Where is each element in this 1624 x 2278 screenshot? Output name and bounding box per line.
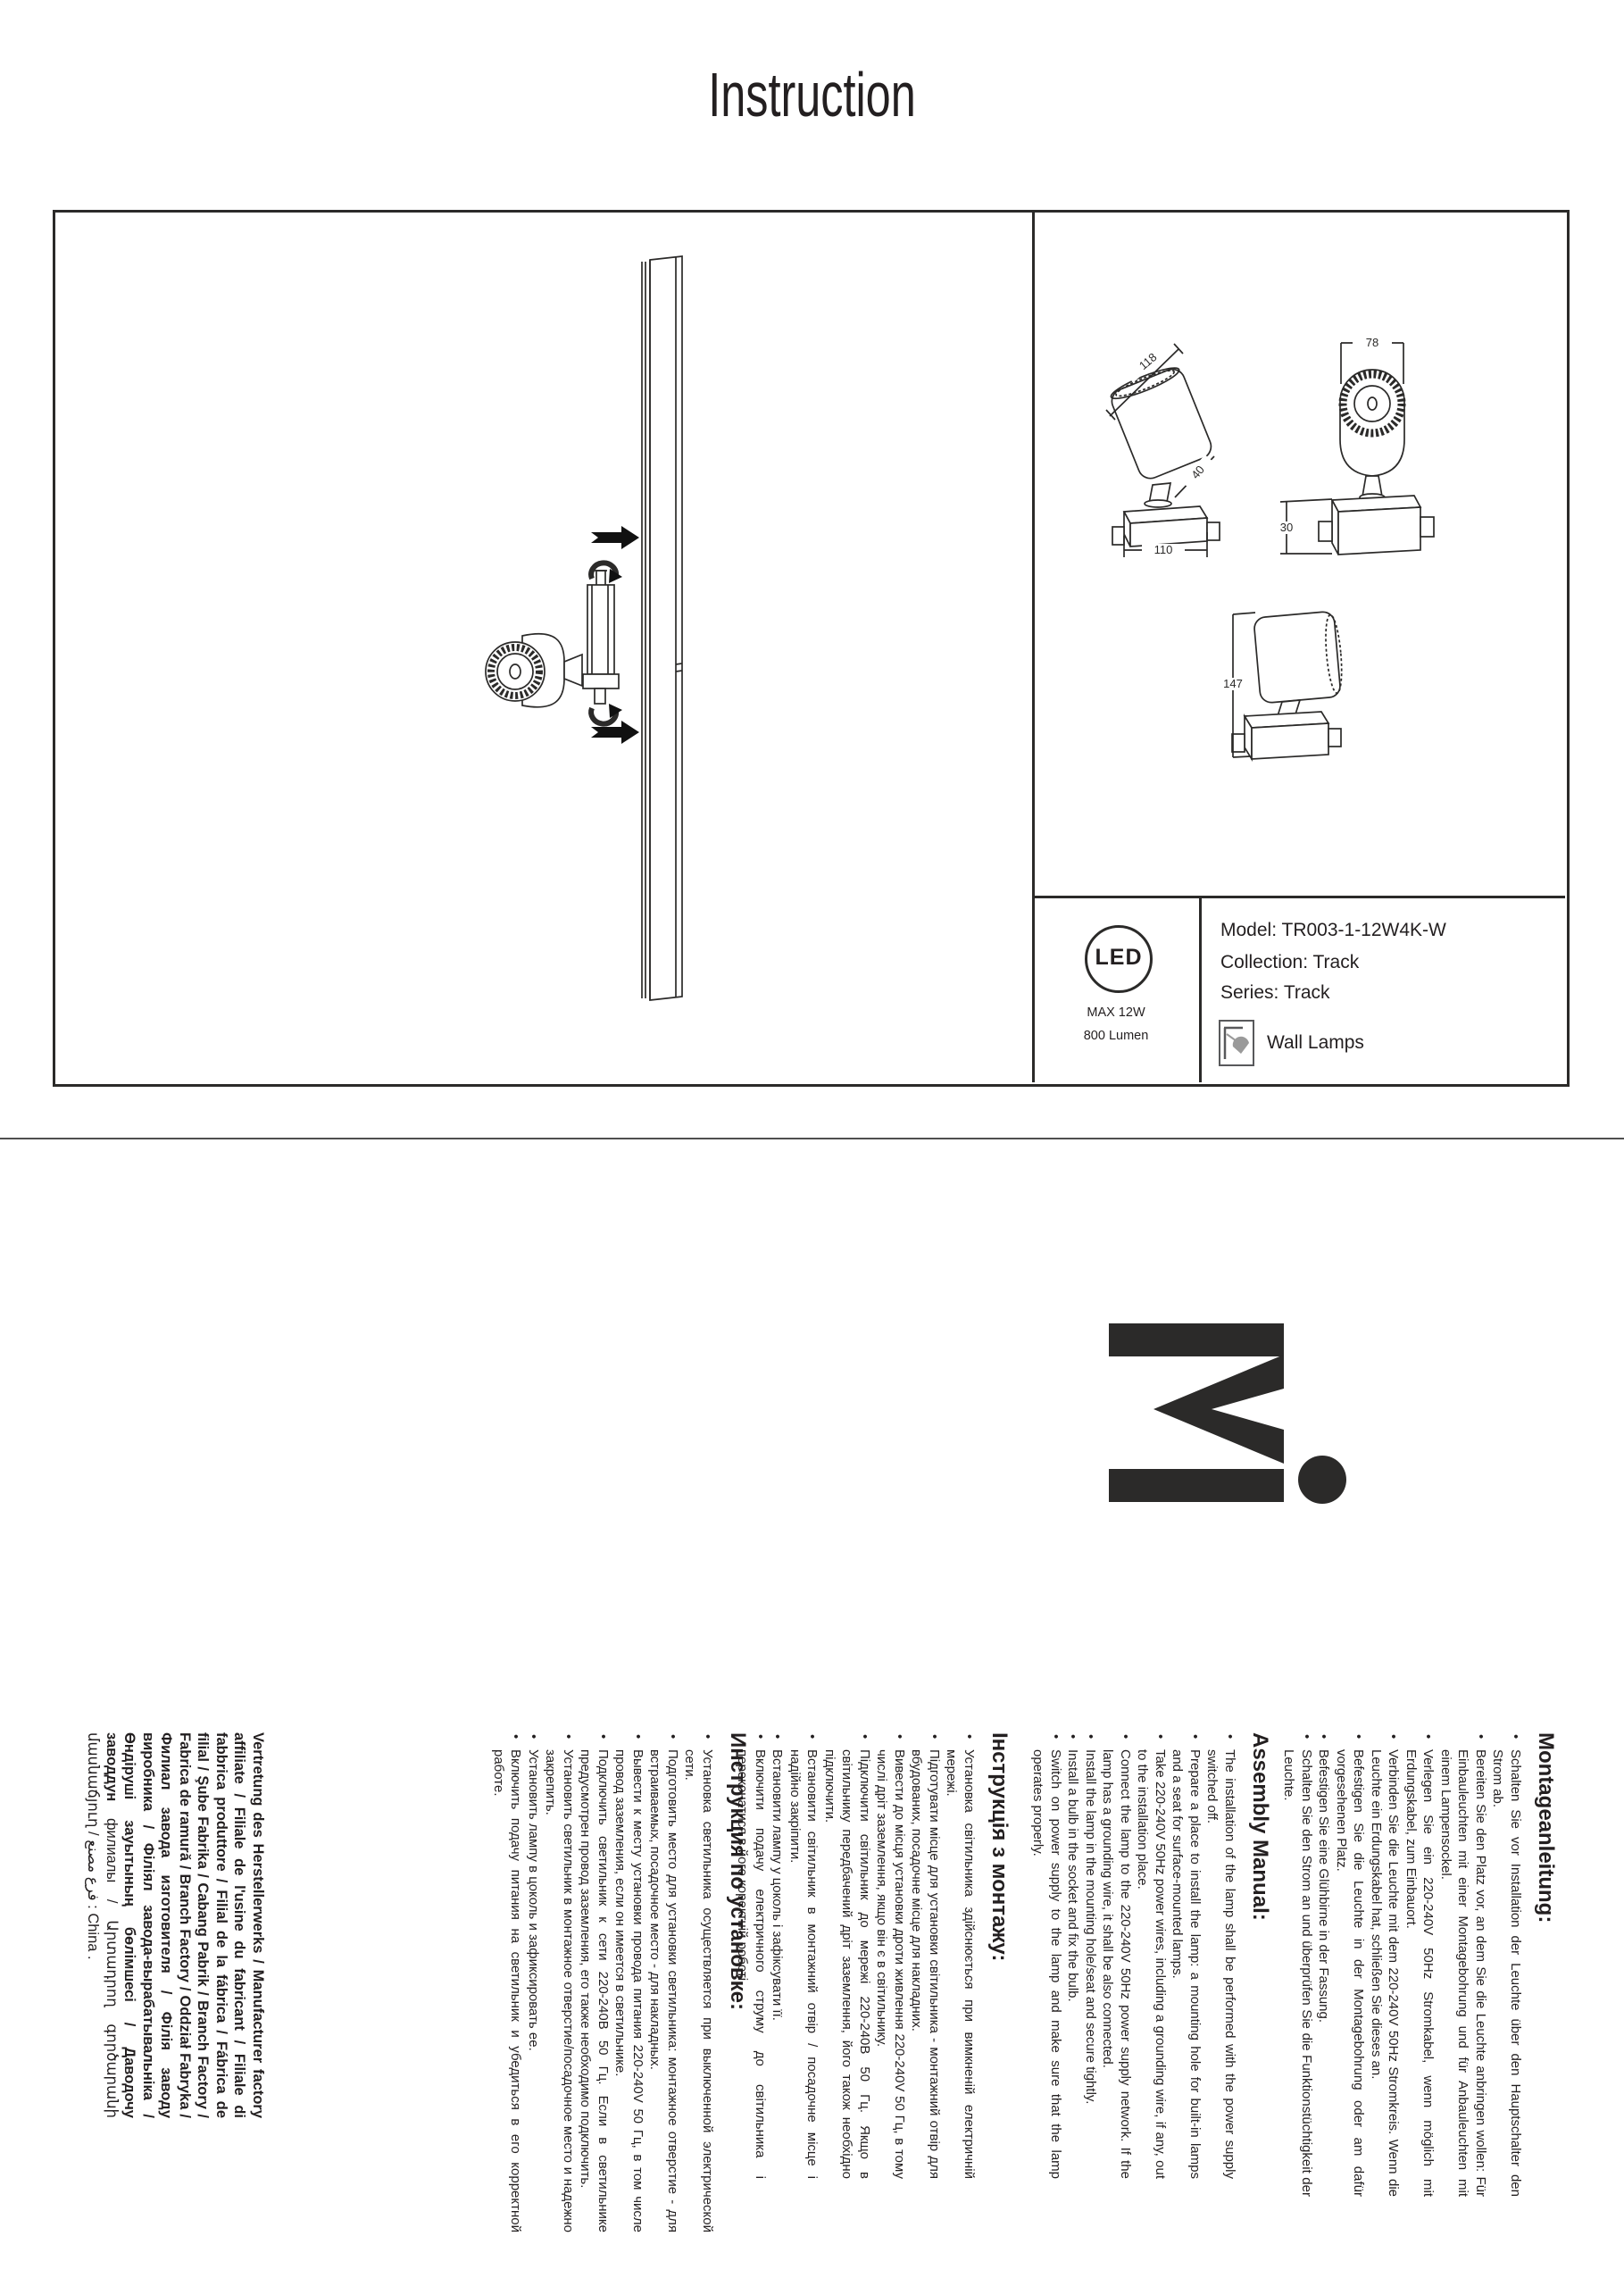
max-power-label: MAX 12W [1049, 1005, 1183, 1020]
led-badge: LED [1085, 925, 1153, 993]
section-german: Montageanleitung: Schalten Sie vor Insta… [1280, 1732, 1558, 2197]
instruction-item: Verlegen Sie ein 220-240V 50Hz Stromkabe… [1403, 1732, 1437, 2197]
section-ukrainian: Інструкція з монтажу: Установка світильн… [734, 1732, 1012, 2179]
collection-line: Collection: Track [1220, 952, 1359, 973]
series-line: Series: Track [1220, 982, 1330, 1004]
instruction-item: Schalten Sie den Strom an und überprüfen… [1280, 1732, 1315, 2197]
instruction-item: Switch on power supply to the lamp and m… [1029, 1732, 1064, 2179]
section-ukrainian-items: Установка світильника здійснюється при в… [734, 1732, 978, 2179]
section-german-items: Schalten Sie vor Installation der Leucht… [1280, 1732, 1524, 2197]
instruction-item: Schalten Sie vor Installation der Leucht… [1489, 1732, 1524, 2197]
dim-total-height: 147 [1215, 678, 1251, 690]
dim-base-height: 30 [1271, 522, 1302, 534]
instruction-item: Take 220-240V 50Hz power wires, includin… [1134, 1732, 1169, 2179]
instruction-item: Bereiten Sie den Platz vor, an dem Sie d… [1437, 1732, 1490, 2197]
section-separator [0, 1138, 1624, 1139]
instruction-item: Подготовить место для установки светильн… [646, 1732, 681, 2232]
instruction-item: Підготувати місце для установки світильн… [908, 1732, 943, 2179]
rotated-instructions-inner: Montageanleitung: Schalten Sie vor Insta… [112, 1732, 1558, 2278]
brand-logo-m [1109, 1323, 1346, 1504]
instruction-item: Вивести до місця установки дроти живленн… [873, 1732, 908, 2179]
dim-base-width: 110 [1142, 544, 1185, 556]
section-ukrainian-heading: Інструкція з монтажу: [987, 1732, 1012, 2179]
section-english-items: The installation of the lamp shall be pe… [1029, 1732, 1238, 2179]
wall-lamp-icon-frame [1219, 1020, 1254, 1066]
instruction-item: Вывести к месту установки провода питани… [612, 1732, 646, 2232]
section-german-heading: Montageanleitung: [1533, 1732, 1558, 2197]
instruction-item: Verbinden Sie die Leuchte mit dem 220-24… [1368, 1732, 1403, 2197]
instruction-item: Установить лампу в цоколь и зафиксироват… [525, 1732, 543, 2232]
manufacturer-note-bold: Vertretung des Herstellerwerks / Manufac… [104, 1732, 266, 2118]
instruction-sheet: Instruction [0, 0, 1624, 2278]
instruction-item: Установка светильника осуществляется при… [681, 1732, 716, 2232]
instruction-item: Встановити світильник в монтажний отвір … [787, 1732, 821, 2179]
manufacturer-note: Vertretung des Herstellerwerks / Manufac… [84, 1732, 267, 2118]
instruction-item: Подключить светильник к сети 220-240В 50… [577, 1732, 612, 2232]
section-russian-heading: Инструкция по установке: [725, 1732, 750, 2232]
model-line: Model: TR003-1-12W4K-W [1220, 920, 1446, 941]
instruction-item: Встановити лампу у цоколь і зафіксувати … [769, 1732, 787, 2179]
figure-side-tilted [1106, 344, 1220, 557]
figure-front [1280, 343, 1434, 555]
rotated-instructions-block: Montageanleitung: Schalten Sie vor Insta… [112, 1732, 1558, 2278]
section-russian-items: Установка светильника осуществляется при… [490, 1732, 717, 2232]
section-english-heading: Assembly Manual: [1247, 1732, 1272, 2179]
track-rail-drawing [642, 256, 682, 1000]
instruction-item: Установка світильника здійснюється при в… [943, 1732, 978, 2179]
instruction-item: Підключити світильник до мережі 220-240В… [821, 1732, 874, 2179]
section-russian: Инструкция по установке: Установка свети… [490, 1732, 751, 2232]
instruction-item: Befestigen Sie eine Glühbirne in der Fas… [1315, 1732, 1333, 2197]
instruction-item: Prepare a place to install the lamp: a m… [1169, 1732, 1203, 2179]
instruction-item: Install a bulb in the socket and fix the… [1064, 1732, 1082, 2179]
instruction-item: Befestigen Sie die Leuchte in der Montag… [1333, 1732, 1368, 2197]
instruction-item: Установить светильник в монтажное отверс… [542, 1732, 577, 2232]
instruction-item: The installation of the lamp shall be pe… [1203, 1732, 1238, 2179]
dim-head-diameter: 78 [1353, 337, 1392, 349]
lamp-installation-drawing [486, 571, 619, 707]
instruction-item: Connect the lamp to the 220-240V 50Hz po… [1099, 1732, 1134, 2179]
luminous-flux-label: 800 Lumen [1049, 1029, 1183, 1043]
instruction-item: Install the lamp in the mounting hole/se… [1082, 1732, 1100, 2179]
category-label: Wall Lamps [1267, 1032, 1364, 1054]
section-english: Assembly Manual: The installation of the… [1029, 1732, 1272, 2179]
instruction-item: Включить подачу питания на светильник и … [490, 1732, 525, 2232]
